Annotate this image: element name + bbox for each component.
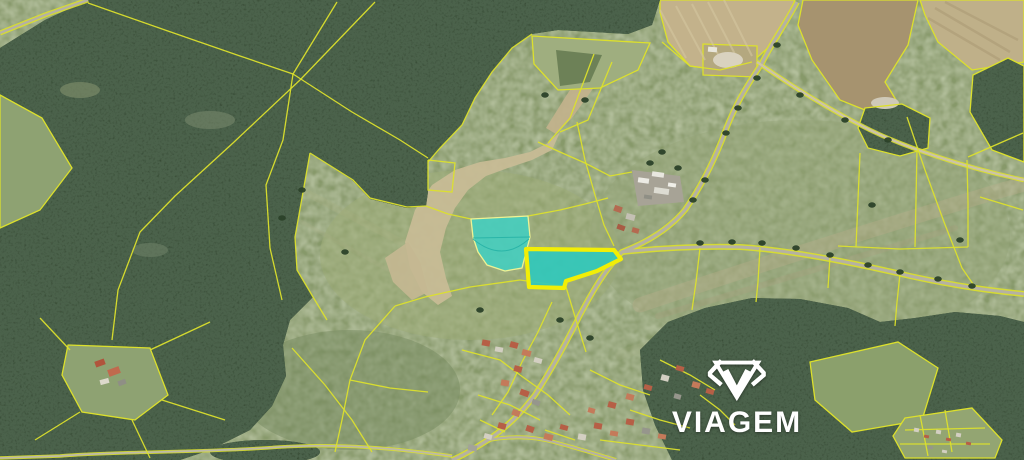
building xyxy=(936,430,942,435)
satellite-map[interactable] xyxy=(0,0,1024,460)
building xyxy=(956,433,962,438)
map-viewport[interactable]: VIAGEM xyxy=(0,0,1024,460)
building xyxy=(708,47,717,53)
building xyxy=(914,428,920,433)
